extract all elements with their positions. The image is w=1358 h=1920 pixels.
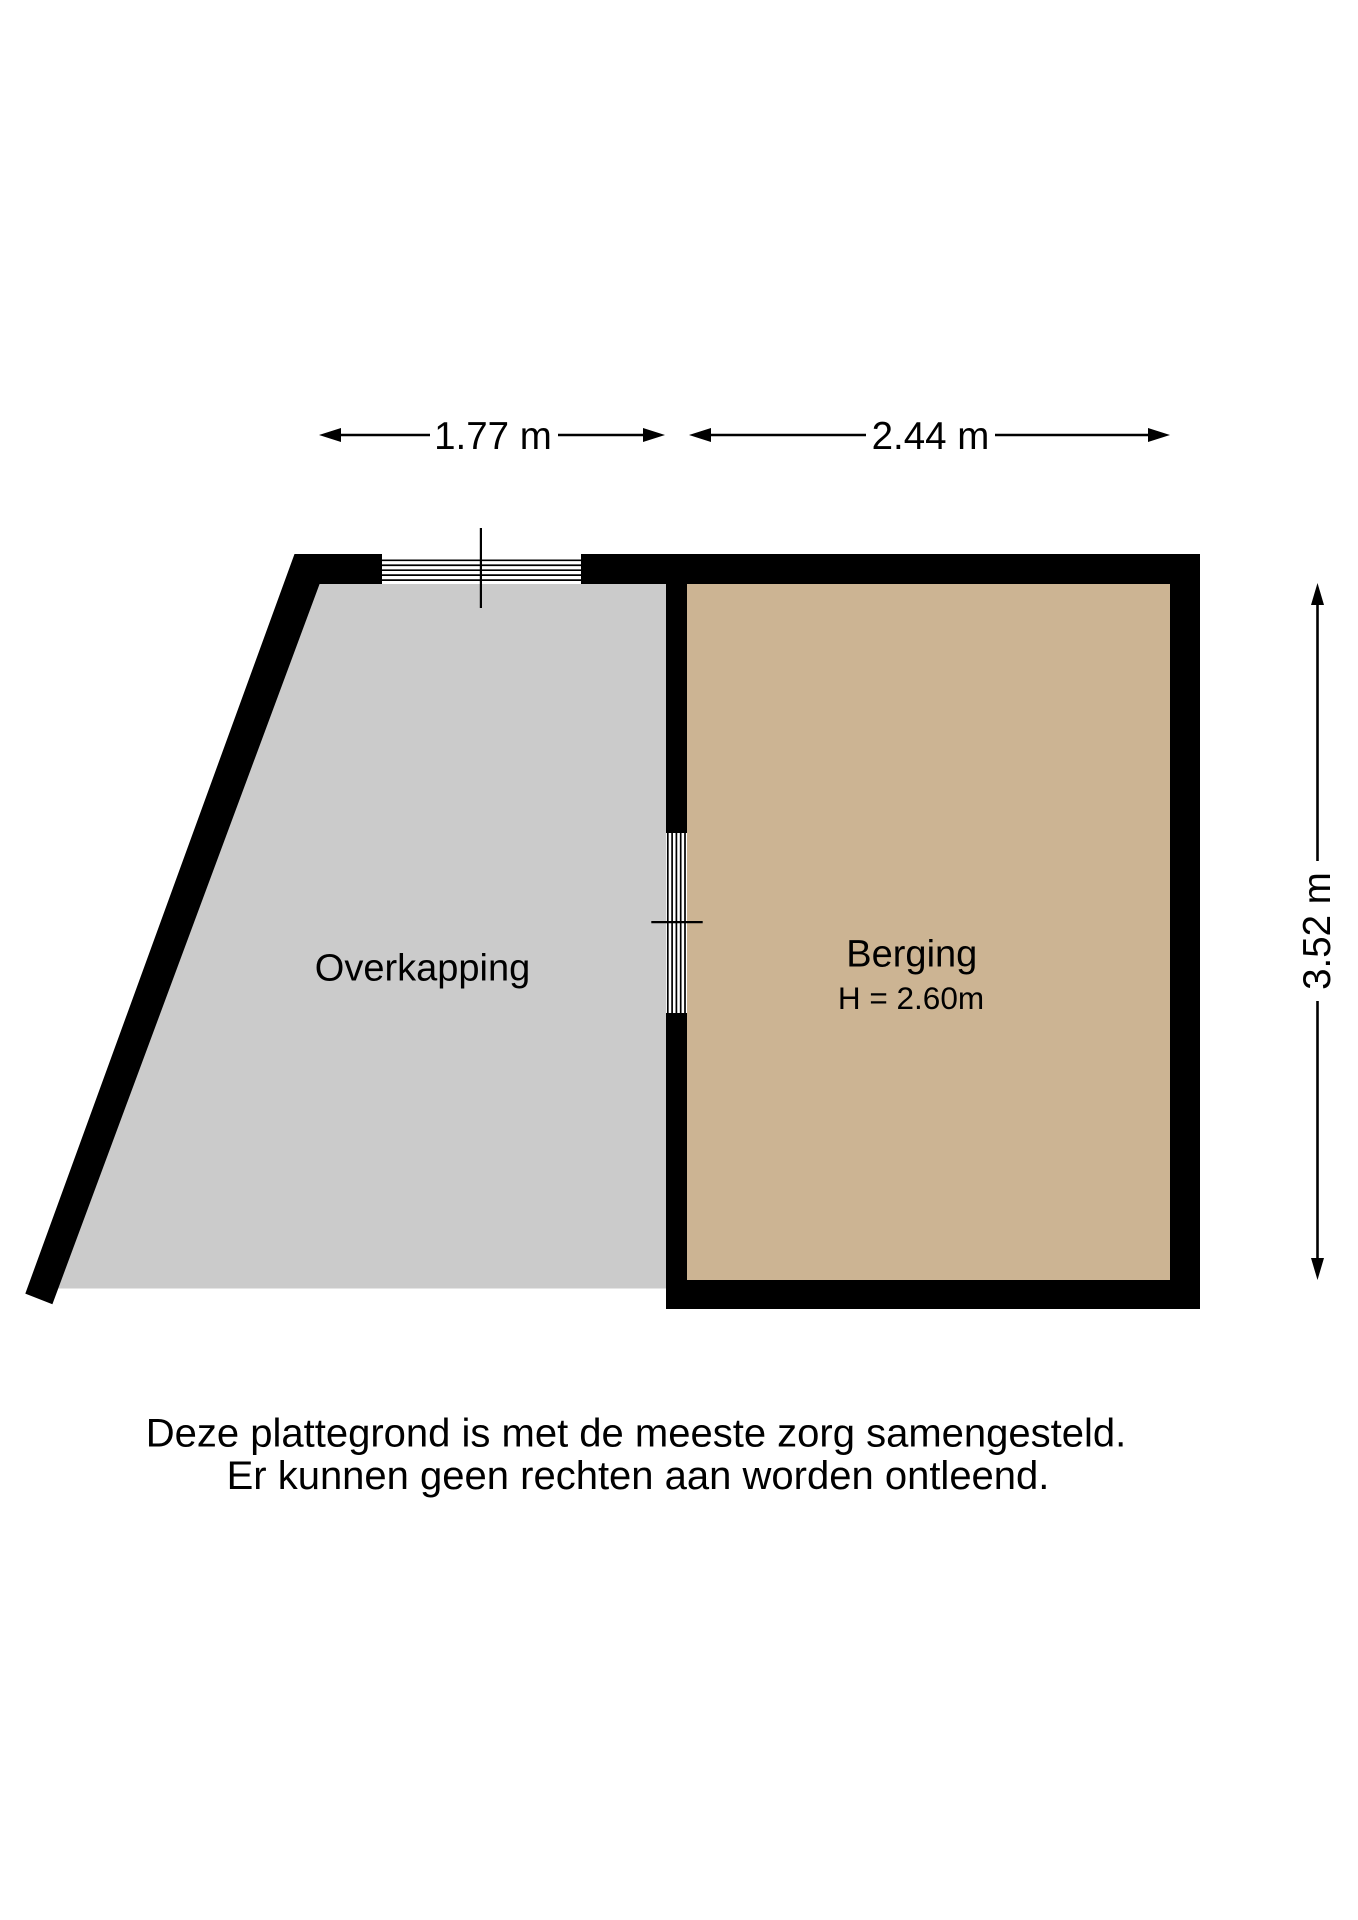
- svg-text:Overkapping: Overkapping: [315, 947, 530, 989]
- svg-text:1.77 m: 1.77 m: [434, 415, 552, 458]
- svg-text:H = 2.60m: H = 2.60m: [838, 980, 984, 1016]
- svg-text:Deze plattegrond is met de mee: Deze plattegrond is met de meeste zorg s…: [146, 1412, 1127, 1456]
- svg-text:Er kunnen geen rechten aan wor: Er kunnen geen rechten aan worden ontlee…: [227, 1454, 1050, 1498]
- svg-text:2.44 m: 2.44 m: [872, 415, 990, 458]
- svg-text:3.52 m: 3.52 m: [1296, 872, 1339, 990]
- svg-text:Berging: Berging: [846, 934, 977, 976]
